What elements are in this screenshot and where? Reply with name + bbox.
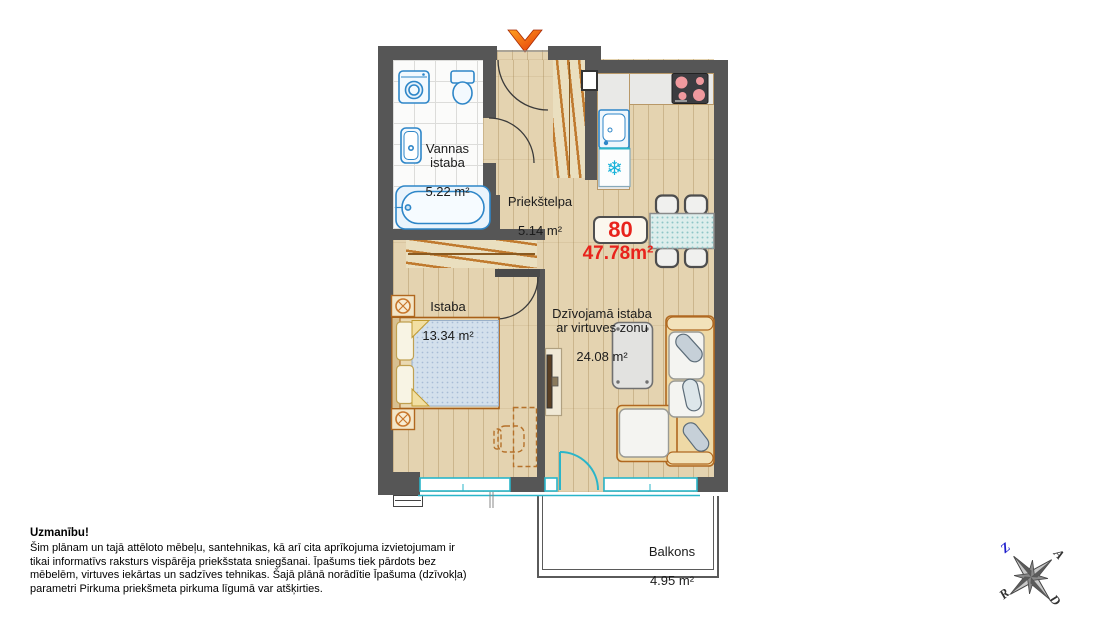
- entrance-arrow-icon: [508, 30, 542, 52]
- room-label-balcony: Balkons 4.95 m²: [628, 530, 716, 603]
- disclaimer-title: Uzmanību!: [30, 527, 472, 539]
- snowflake-icon: ❄: [606, 156, 623, 180]
- dining-chair: [685, 248, 707, 267]
- room-area: 5.14 m²: [488, 224, 592, 239]
- dining-chair: [685, 196, 707, 215]
- dining-chair: [656, 196, 678, 215]
- room-label-bathroom: Vannas istaba 5.22 m²: [395, 127, 500, 214]
- total-area-label: 47.78m²: [572, 243, 664, 265]
- room-area: 4.95 m²: [628, 574, 716, 589]
- room-area: 13.34 m²: [396, 329, 500, 344]
- balcony-door-arc: [560, 452, 598, 490]
- room-label-living: Dzīvojamā istaba ar virtuves zonu 24.08 …: [538, 292, 666, 379]
- bedroom-window: [420, 478, 510, 491]
- railing-mark: [490, 492, 493, 508]
- compass-rose: Z A D R: [993, 539, 1070, 617]
- desk-outline: [514, 408, 537, 467]
- floor-plan-canvas: ❄: [0, 0, 1110, 624]
- apartment-number-badge: 80: [593, 216, 648, 244]
- desk-chair-outline: [498, 426, 524, 452]
- entrance-door-arc: [498, 60, 548, 110]
- room-label-hallway: Priekštelpa 5.14 m²: [488, 180, 592, 253]
- living-sidelight-window: [545, 478, 557, 491]
- duct-shaft: [582, 71, 597, 90]
- sofa-cushion: [620, 409, 669, 457]
- freezer: ❄: [599, 149, 630, 187]
- washing-machine: [399, 71, 429, 103]
- kitchen-sink: [599, 110, 629, 148]
- compass-south-label: D: [1046, 591, 1065, 609]
- toilet: [451, 71, 474, 104]
- room-name: Priekštelpa: [488, 195, 592, 210]
- room-name: Istaba: [396, 300, 500, 315]
- balcony-door: [560, 452, 598, 490]
- room-name: Dzīvojamā istaba ar virtuves zonu: [538, 307, 666, 336]
- kitchen-fixtures: ❄: [582, 71, 708, 187]
- room-name: Vannas istaba: [395, 142, 500, 171]
- room-label-bedroom: Istaba 13.34 m²: [396, 285, 500, 358]
- compass-north-label: Z: [996, 539, 1013, 556]
- room-area: 24.08 m²: [538, 350, 666, 365]
- disclaimer: Uzmanību! Šim plānam un tajā attēloto mē…: [30, 527, 472, 596]
- sofa-armrest: [667, 317, 713, 330]
- sofa-armrest: [667, 452, 713, 464]
- optional-desk-dashed: [494, 408, 537, 467]
- stove: [672, 74, 708, 104]
- compass-east-label: A: [1050, 545, 1068, 562]
- compass-west-label: R: [995, 585, 1012, 603]
- lamp-icon: [396, 412, 410, 426]
- bedroom-door-arc: [496, 277, 538, 319]
- room-name: Balkons: [628, 545, 716, 560]
- room-area: 5.22 m²: [395, 185, 500, 200]
- pillow: [397, 366, 414, 404]
- disclaimer-body: Šim plānam un tajā attēloto mēbeļu, sant…: [30, 542, 472, 596]
